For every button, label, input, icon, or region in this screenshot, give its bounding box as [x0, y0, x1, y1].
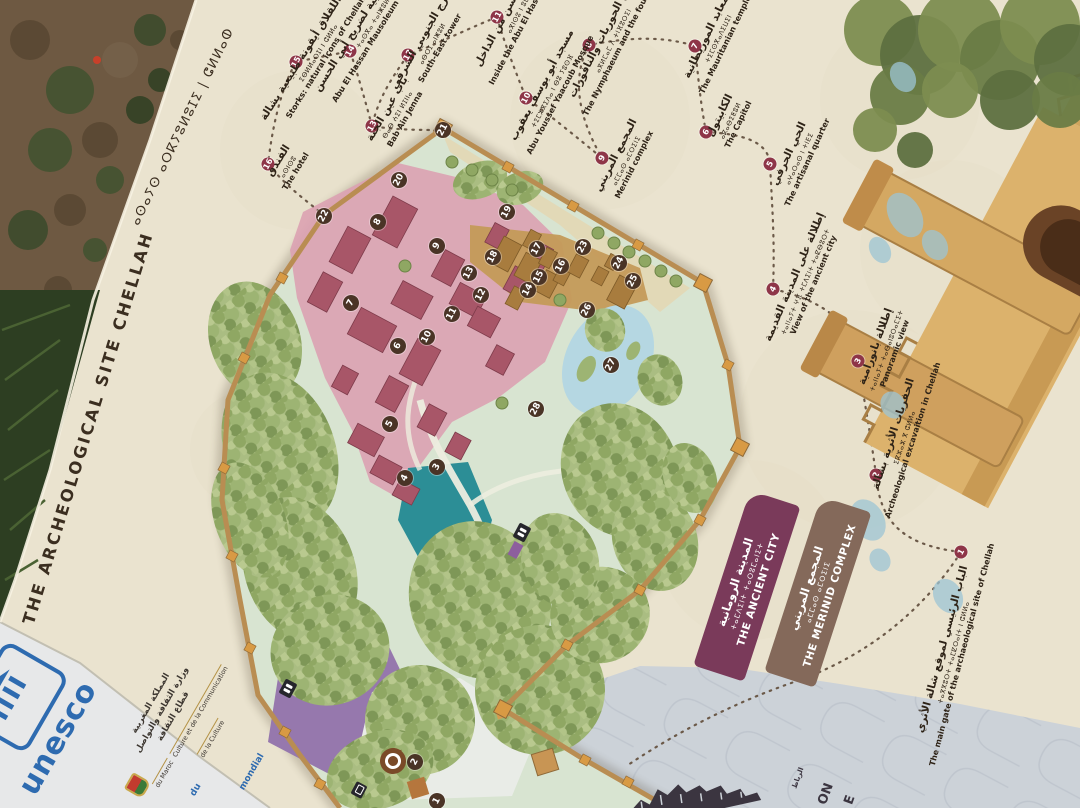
photo-of-chellah-site-map-sign: THE ARCHEOLOGICAL SITE CHELLAH ⴰⵙⴰⵢⵙ ⴰⵔⴽ…	[0, 0, 1080, 808]
ministry-french: du Maroc	[152, 758, 177, 790]
